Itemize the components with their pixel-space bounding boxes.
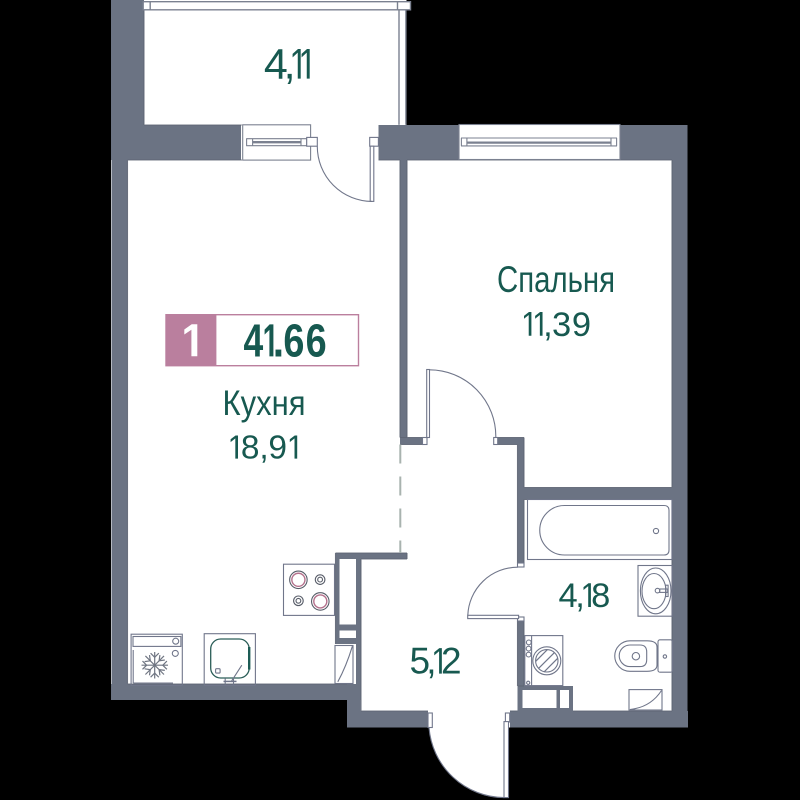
svg-text:8: 8 (591, 577, 610, 615)
svg-text:,: , (575, 577, 585, 615)
svg-text:3: 3 (552, 306, 571, 344)
svg-text:Спальня: Спальня (497, 259, 615, 300)
svg-text:,: , (426, 641, 436, 682)
svg-text:9: 9 (268, 430, 287, 467)
svg-text:,: , (284, 41, 296, 89)
svg-text:4: 4 (243, 315, 263, 367)
svg-text:,: , (259, 430, 268, 467)
svg-text:9: 9 (572, 306, 591, 344)
svg-text:.: . (273, 315, 284, 367)
svg-text:8: 8 (241, 430, 260, 467)
svg-text:6: 6 (306, 315, 327, 367)
svg-text:2: 2 (441, 641, 462, 682)
svg-text:6: 6 (283, 315, 304, 367)
svg-text:Кухня: Кухня (223, 384, 306, 423)
